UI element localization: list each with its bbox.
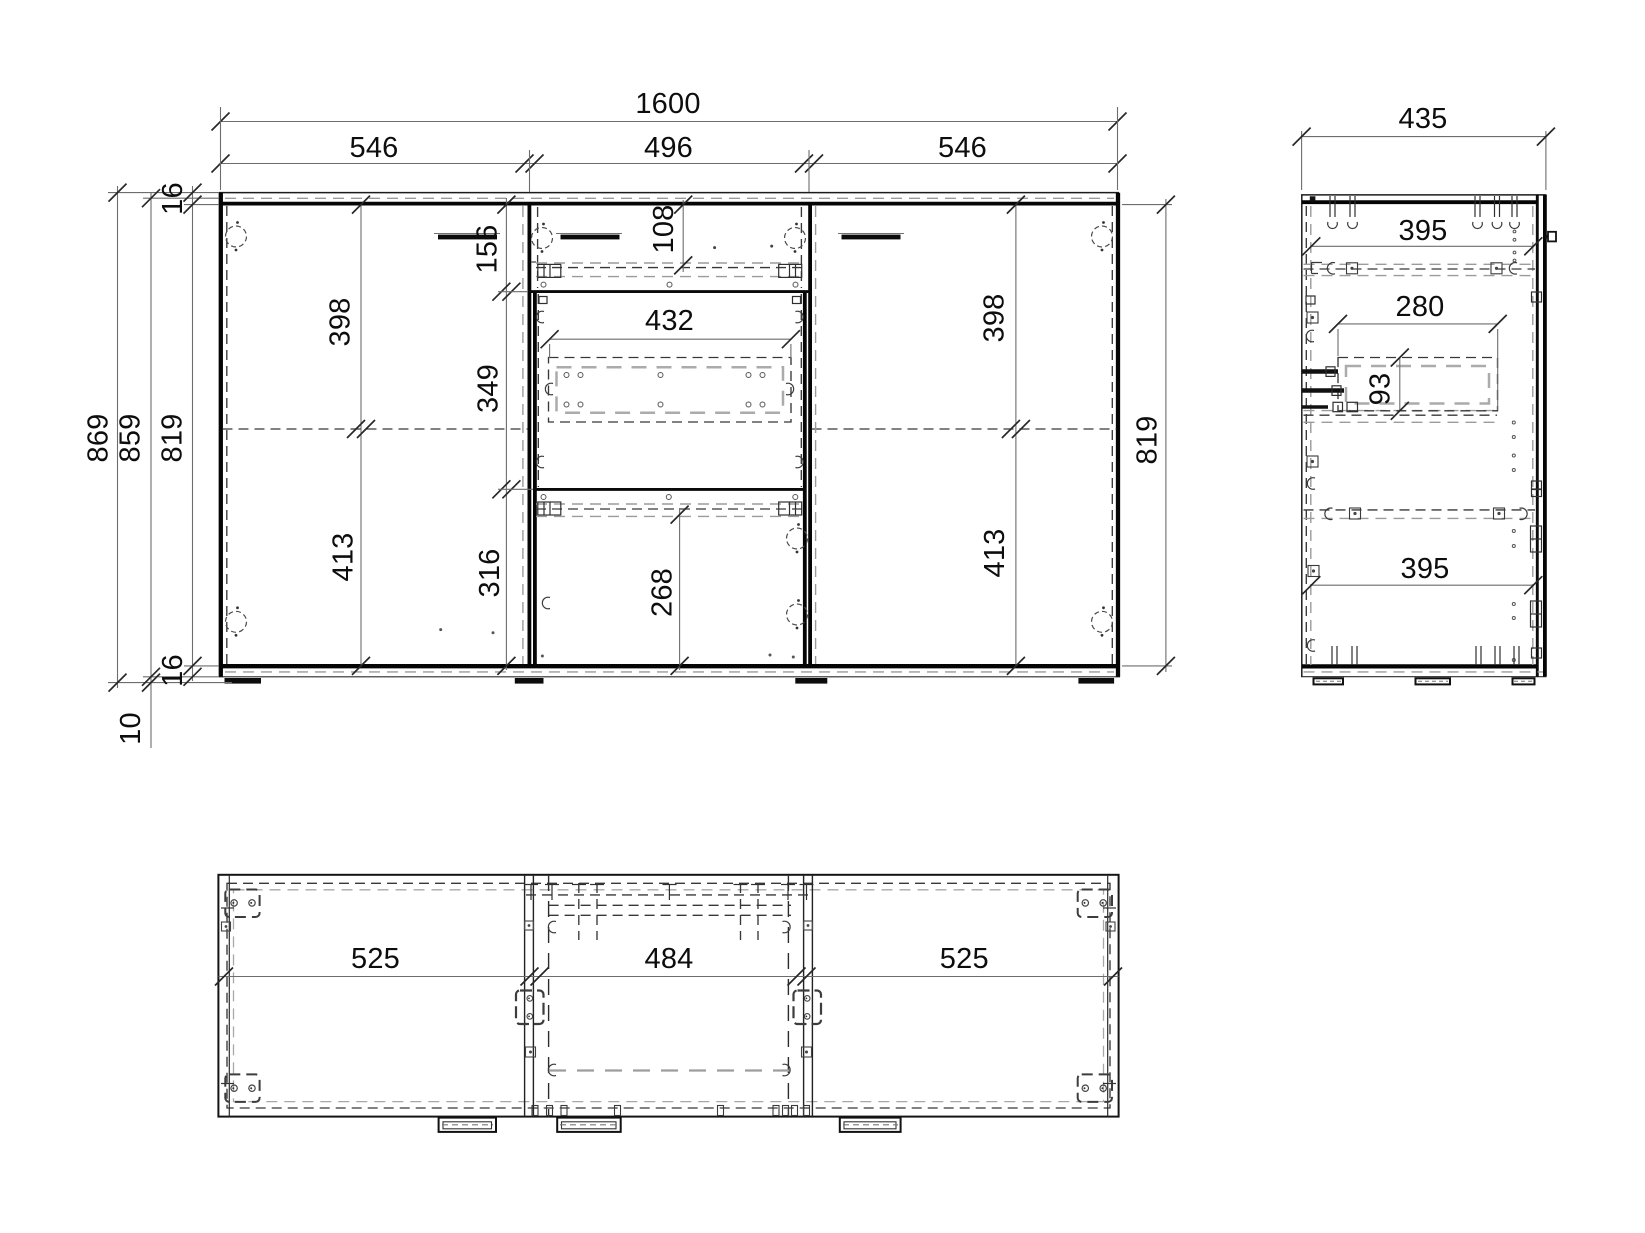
svg-text:395: 395 (1399, 215, 1448, 247)
svg-text:496: 496 (644, 132, 693, 164)
svg-text:525: 525 (351, 943, 400, 975)
svg-text:435: 435 (1399, 103, 1448, 135)
svg-text:93: 93 (1365, 373, 1397, 406)
svg-text:16: 16 (157, 654, 189, 687)
svg-text:819: 819 (157, 414, 189, 463)
svg-text:869: 869 (83, 414, 115, 463)
svg-text:10: 10 (115, 712, 147, 745)
svg-text:16: 16 (157, 182, 189, 215)
svg-text:546: 546 (350, 132, 399, 164)
svg-text:819: 819 (1132, 416, 1164, 465)
svg-text:484: 484 (645, 943, 694, 975)
svg-text:413: 413 (328, 533, 360, 582)
svg-text:268: 268 (647, 568, 679, 617)
svg-text:349: 349 (473, 364, 505, 413)
svg-text:1600: 1600 (635, 88, 700, 120)
svg-text:859: 859 (115, 414, 147, 463)
svg-text:395: 395 (1401, 553, 1450, 585)
svg-text:432: 432 (645, 305, 694, 337)
svg-text:398: 398 (979, 294, 1011, 343)
svg-text:156: 156 (472, 225, 504, 274)
svg-text:316: 316 (474, 549, 506, 598)
svg-text:108: 108 (648, 205, 680, 254)
svg-text:525: 525 (940, 943, 989, 975)
svg-text:398: 398 (325, 298, 357, 347)
svg-text:413: 413 (979, 529, 1011, 578)
svg-text:280: 280 (1396, 291, 1445, 323)
svg-text:546: 546 (938, 132, 987, 164)
